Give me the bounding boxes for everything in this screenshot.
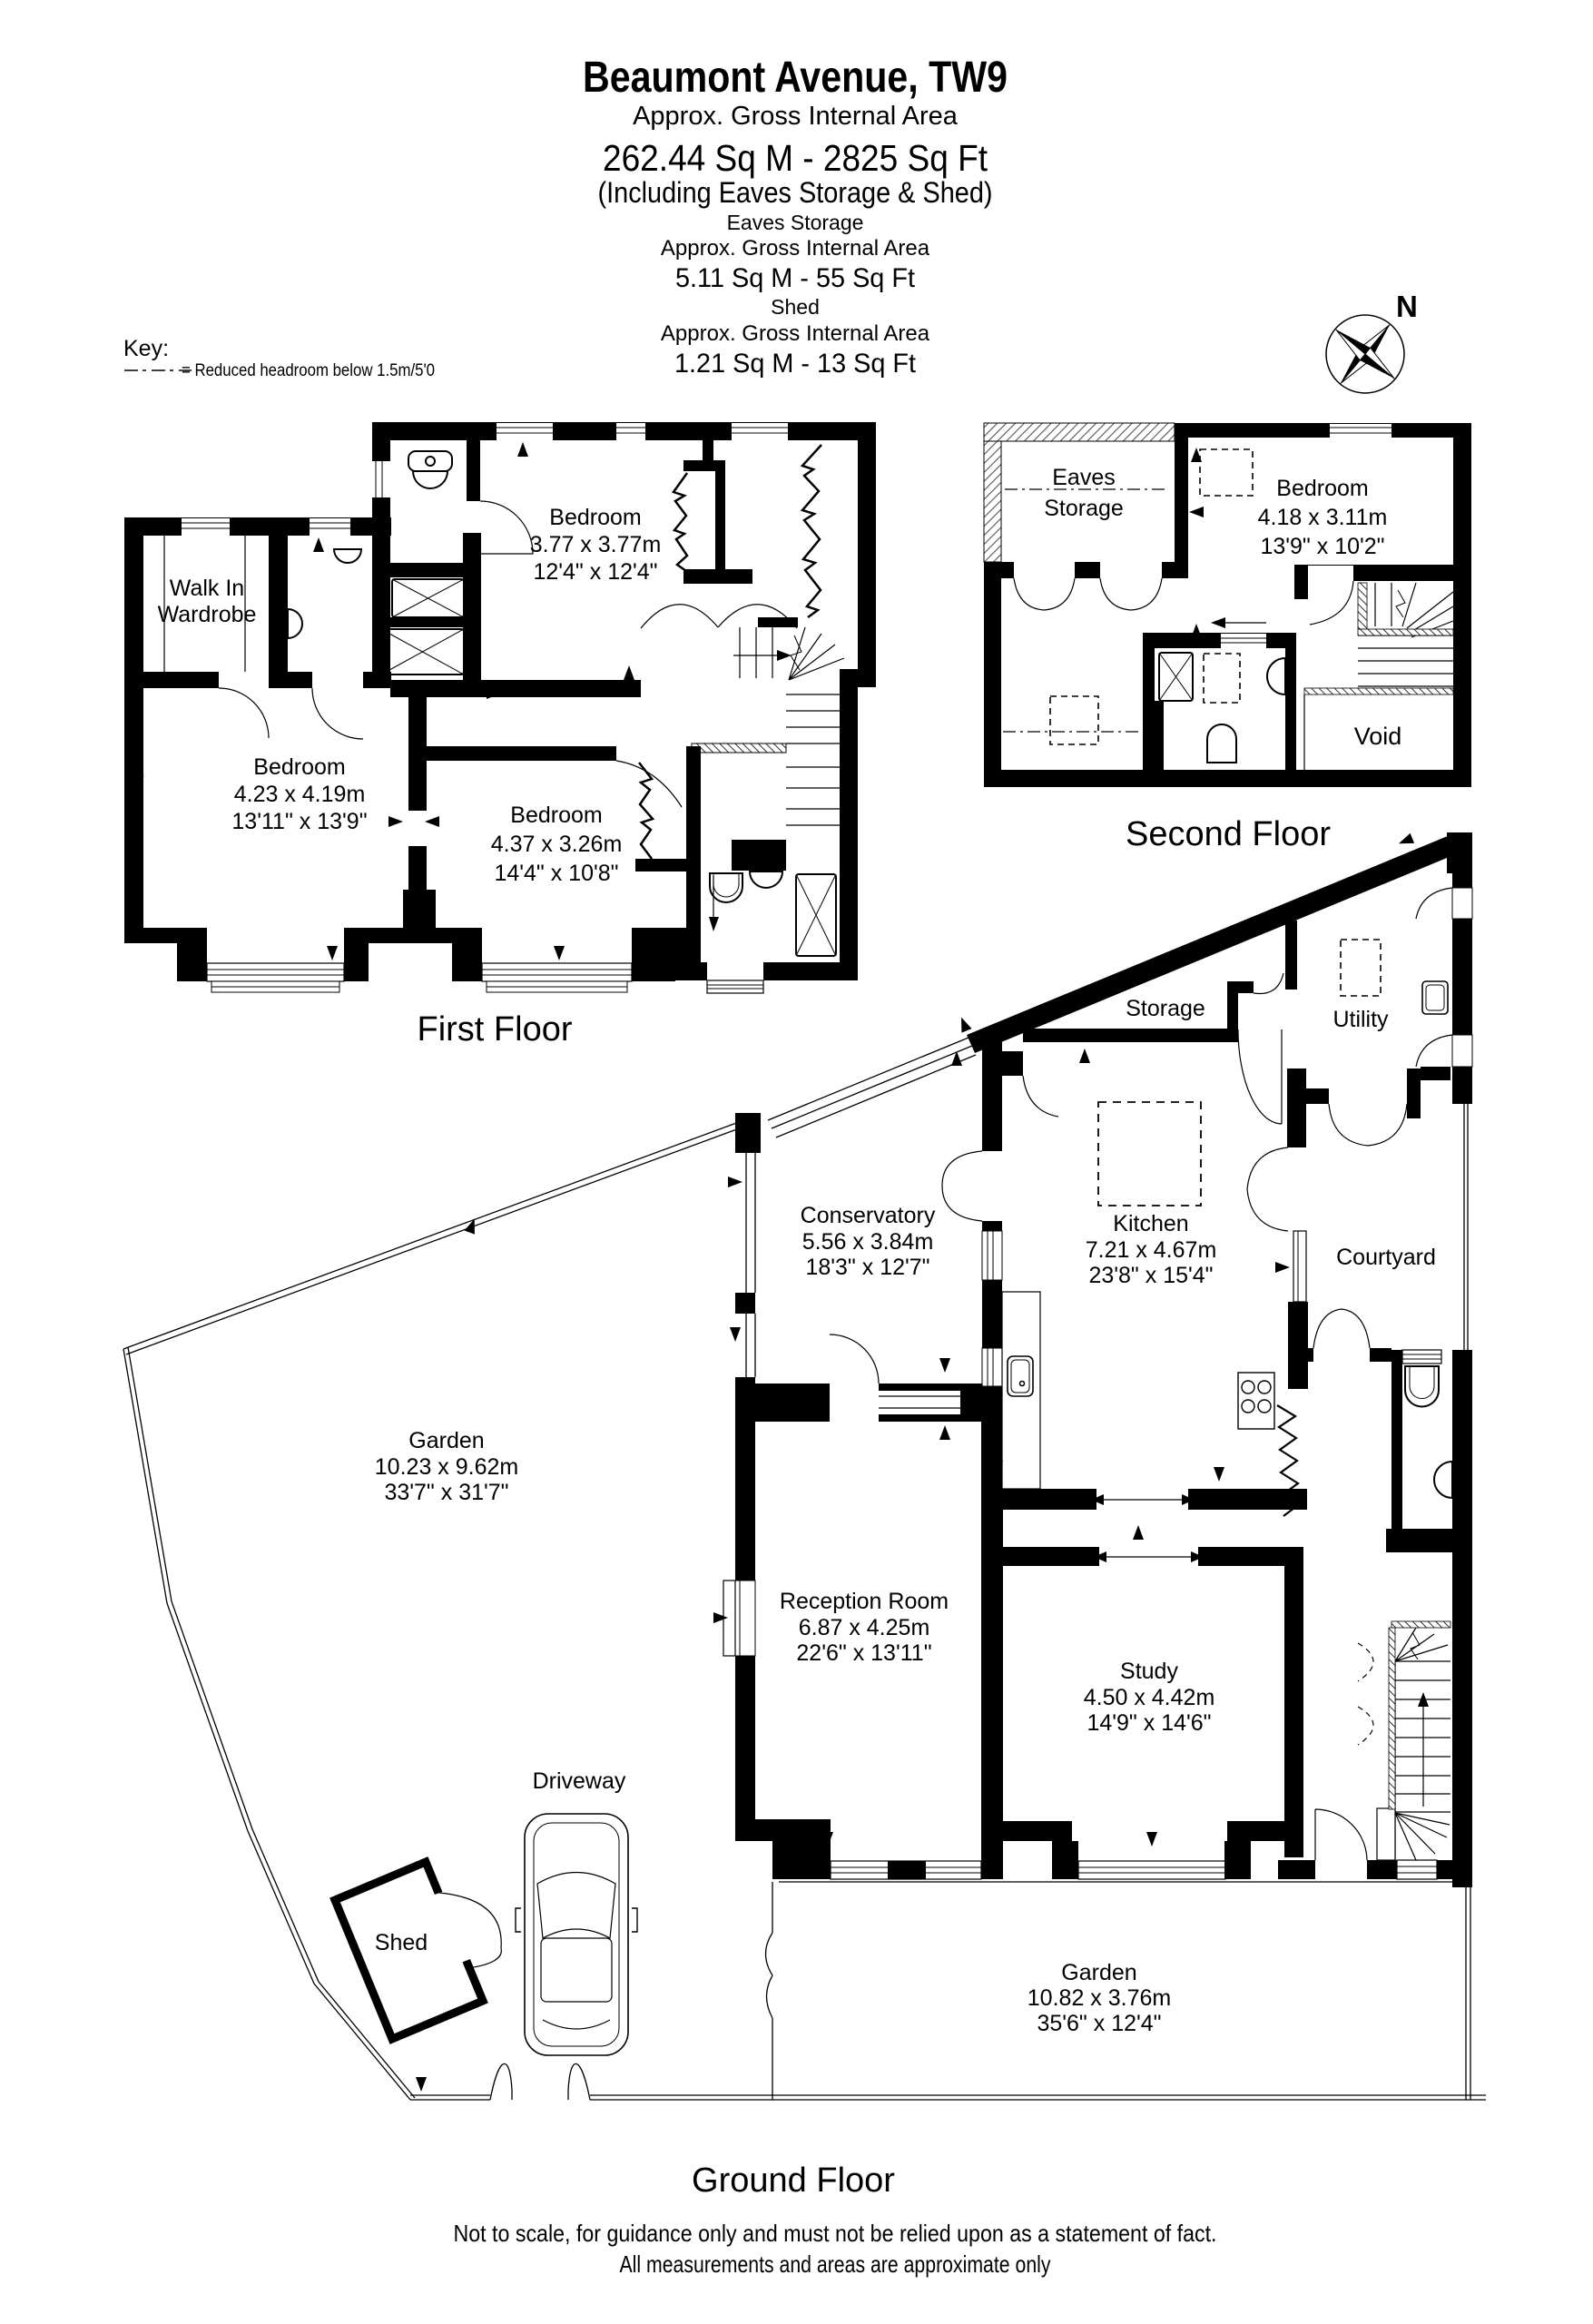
svg-text:Utility: Utility <box>1332 1007 1389 1032</box>
svg-text:= Reduced headroom below 1.5m/: = Reduced headroom below 1.5m/5'0 <box>182 361 435 380</box>
svg-text:Bedroom: Bedroom <box>1276 476 1368 501</box>
svg-text:(Including Eaves Storage & She: (Including Eaves Storage & Shed) <box>598 176 993 209</box>
svg-text:Beaumont Avenue, TW9: Beaumont Avenue, TW9 <box>583 54 1008 102</box>
svg-text:Shed: Shed <box>375 1930 428 1955</box>
svg-text:Bedroom: Bedroom <box>253 754 345 780</box>
svg-text:6.87 x 4.25m: 6.87 x 4.25m <box>799 1615 930 1640</box>
svg-text:12'4" x 12'4": 12'4" x 12'4" <box>533 559 657 585</box>
svg-text:22'6" x 13'11": 22'6" x 13'11" <box>796 1640 931 1666</box>
svg-text:33'7" x 31'7": 33'7" x 31'7" <box>384 1480 508 1505</box>
svg-text:Eaves: Eaves <box>1052 465 1115 490</box>
svg-text:18'3" x 12'7": 18'3" x 12'7" <box>805 1255 929 1280</box>
svg-text:10.82 x 3.76m: 10.82 x 3.76m <box>1028 1985 1171 2011</box>
svg-text:Ground Floor: Ground Floor <box>692 2162 895 2200</box>
svg-text:Kitchen: Kitchen <box>1113 1211 1188 1236</box>
svg-text:Eaves Storage: Eaves Storage <box>727 211 864 234</box>
svg-text:7.21 x 4.67m: 7.21 x 4.67m <box>1086 1237 1217 1263</box>
svg-text:1.21 Sq M - 13 Sq Ft: 1.21 Sq M - 13 Sq Ft <box>674 349 917 379</box>
svg-text:14'9" x 14'6": 14'9" x 14'6" <box>1087 1710 1211 1736</box>
svg-text:Not to scale, for guidance onl: Not to scale, for guidance only and must… <box>454 2220 1217 2247</box>
svg-text:23'8" x 15'4": 23'8" x 15'4" <box>1088 1263 1213 1288</box>
svg-text:Walk In: Walk In <box>170 576 244 601</box>
svg-text:Garden: Garden <box>408 1428 484 1453</box>
svg-text:5.56 x 3.84m: 5.56 x 3.84m <box>802 1229 934 1255</box>
svg-text:Wardrobe: Wardrobe <box>158 602 257 627</box>
svg-text:10.23 x 9.62m: 10.23 x 9.62m <box>375 1454 518 1480</box>
svg-text:Garden: Garden <box>1061 1960 1136 1985</box>
svg-text:4.37 x 3.26m: 4.37 x 3.26m <box>491 832 623 857</box>
svg-text:Shed: Shed <box>771 295 820 319</box>
svg-text:14'4" x 10'8": 14'4" x 10'8" <box>494 861 618 886</box>
svg-text:First Floor: First Floor <box>418 1010 573 1049</box>
svg-text:13'9" x 10'2": 13'9" x 10'2" <box>1260 534 1384 559</box>
svg-text:Bedroom: Bedroom <box>510 803 602 828</box>
svg-text:13'11" x 13'9": 13'11" x 13'9" <box>231 809 367 834</box>
svg-text:3.77 x 3.77m: 3.77 x 3.77m <box>530 532 662 557</box>
svg-text:Storage: Storage <box>1126 996 1205 1021</box>
svg-text:Second Floor: Second Floor <box>1126 815 1331 853</box>
svg-text:35'6" x 12'4": 35'6" x 12'4" <box>1037 2011 1161 2036</box>
svg-text:Reception Room: Reception Room <box>780 1589 949 1614</box>
svg-text:4.23 x 4.19m: 4.23 x 4.19m <box>234 782 366 807</box>
svg-text:Study: Study <box>1120 1659 1178 1684</box>
svg-text:Conservatory: Conservatory <box>801 1203 936 1228</box>
svg-text:Approx. Gross Internal Area: Approx. Gross Internal Area <box>633 102 959 131</box>
svg-text:4.18 x 3.11m: 4.18 x 3.11m <box>1258 505 1388 530</box>
svg-text:262.44 Sq M - 2825 Sq Ft: 262.44 Sq M - 2825 Sq Ft <box>603 137 988 179</box>
svg-text:4.50 x 4.42m: 4.50 x 4.42m <box>1084 1685 1215 1710</box>
svg-text:Driveway: Driveway <box>533 1768 626 1794</box>
svg-text:Bedroom: Bedroom <box>549 505 641 530</box>
svg-text:All measurements and areas are: All measurements and areas are approxima… <box>620 2250 1051 2278</box>
svg-text:Key:: Key: <box>123 336 169 361</box>
svg-text:Approx. Gross Internal Area: Approx. Gross Internal Area <box>661 321 930 346</box>
svg-text:N: N <box>1396 290 1418 323</box>
svg-text:Storage: Storage <box>1044 496 1124 521</box>
svg-text:Approx. Gross Internal Area: Approx. Gross Internal Area <box>661 236 930 261</box>
svg-text:Void: Void <box>1354 723 1402 750</box>
svg-text:5.11 Sq M - 55 Sq Ft: 5.11 Sq M - 55 Sq Ft <box>675 263 916 293</box>
svg-text:Courtyard: Courtyard <box>1336 1245 1436 1270</box>
